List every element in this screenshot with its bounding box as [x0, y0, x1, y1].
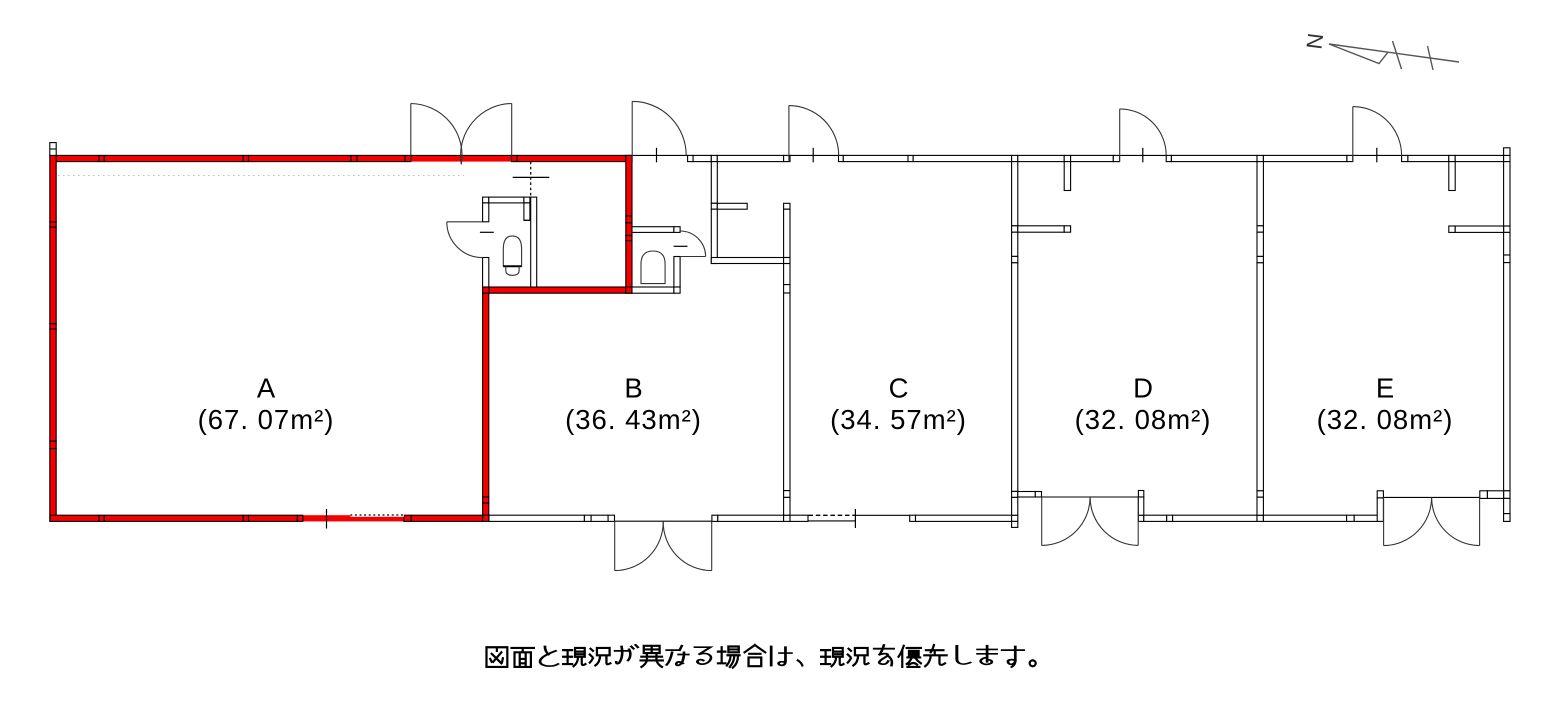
- svg-text:E: E: [1376, 373, 1394, 404]
- svg-text:N: N: [1301, 32, 1328, 51]
- svg-text:(36. 43m²): (36. 43m²): [565, 404, 702, 435]
- svg-text:D: D: [1133, 373, 1153, 404]
- svg-text:A: A: [257, 373, 276, 404]
- svg-text:C: C: [889, 373, 909, 404]
- svg-text:B: B: [624, 373, 642, 404]
- svg-text:(32. 08m²): (32. 08m²): [1075, 404, 1212, 435]
- svg-text:(32. 08m²): (32. 08m²): [1317, 404, 1454, 435]
- svg-text:(67. 07m²): (67. 07m²): [198, 404, 335, 435]
- svg-text:(34. 57m²): (34. 57m²): [830, 404, 967, 435]
